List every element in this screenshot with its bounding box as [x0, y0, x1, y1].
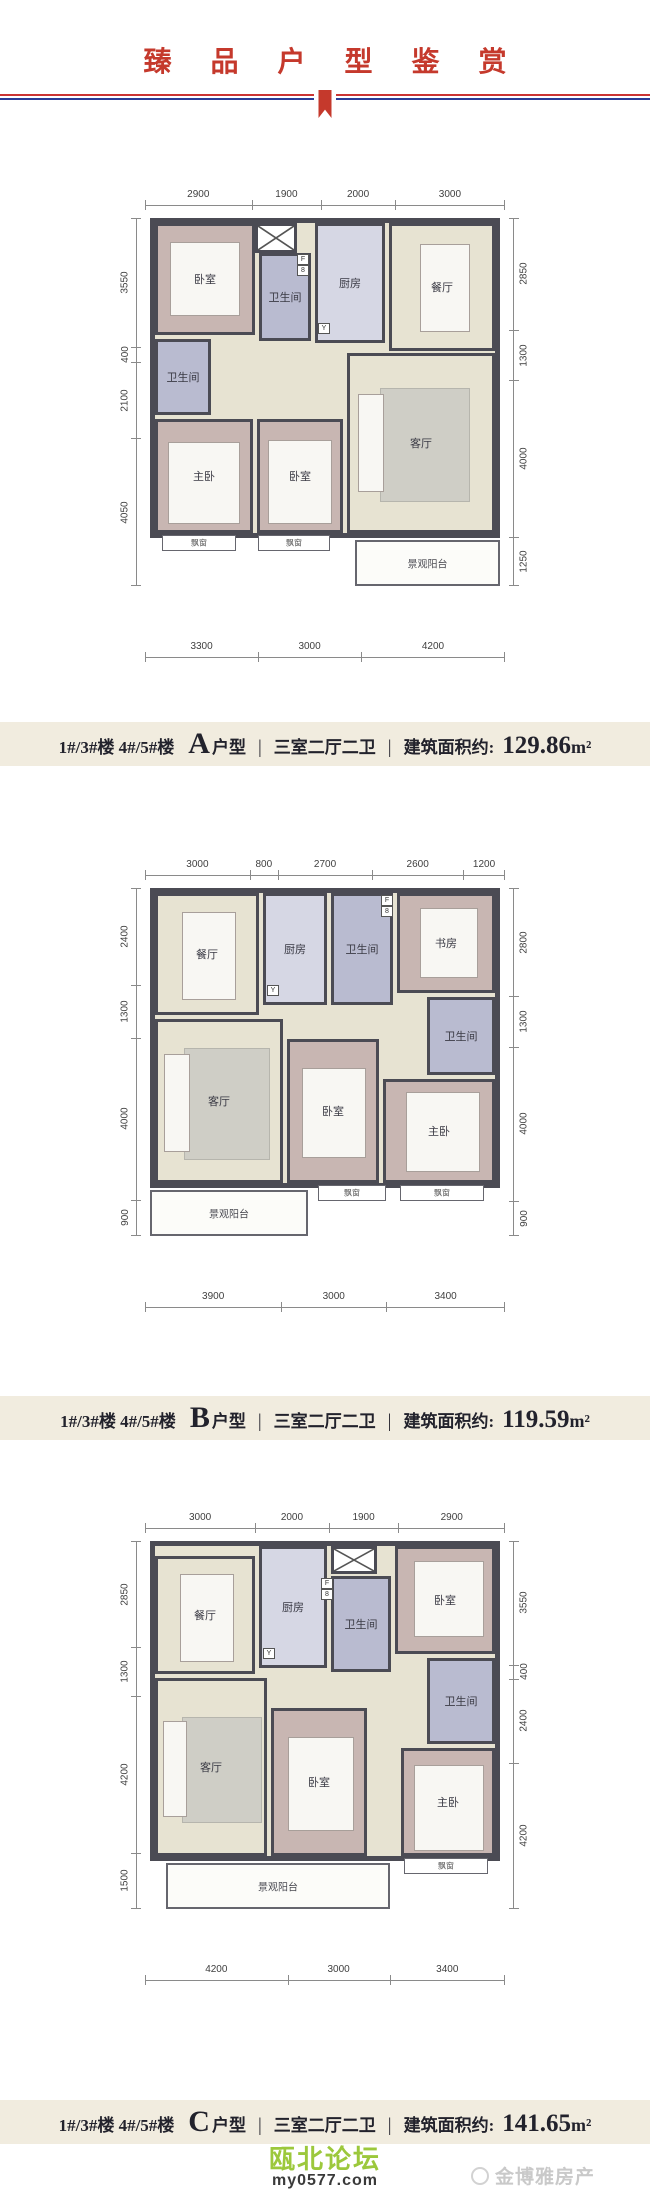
dim-segment: 3000: [258, 640, 361, 658]
dim-segment: 4200: [361, 640, 505, 658]
floorplan-a: 卧室 卫生间 F 8 厨房 Y 餐厅: [150, 218, 500, 586]
dim-segment: 3000: [145, 1511, 255, 1529]
agency-watermark: 金博雅房产: [471, 2162, 595, 2189]
dim-rail-top-b: 3000800270026001200: [145, 858, 505, 876]
caption-separator: |: [388, 726, 392, 770]
sofa-icon: [164, 1054, 190, 1152]
plan-b-caption: 1#/3#楼 4#/5#楼 B 户型 | 三室二厅二卫 | 建筑面积约: 119…: [0, 1396, 650, 1440]
dim-rail-bottom-a: 330030004200: [145, 640, 505, 658]
caption-layout: 三室二厅二卫: [274, 2104, 376, 2148]
elevator-shaft-icon: [331, 1546, 377, 1574]
dim-segment: 1300: [115, 985, 137, 1038]
caption-separator: |: [388, 2104, 392, 2148]
dim-rail-left-b: 240013004000900: [115, 888, 137, 1236]
bay-window: 飘窗: [258, 535, 330, 551]
room-master-bedroom: 主卧: [383, 1079, 495, 1183]
caption-area-unit: m²: [571, 725, 591, 769]
dim-segment: 400: [513, 1665, 535, 1679]
dim-segment: 1900: [252, 188, 322, 206]
page-title: 臻 品 户 型 鉴 赏: [0, 40, 650, 80]
floorplan-a-body: 卧室 卫生间 F 8 厨房 Y 餐厅: [150, 218, 500, 538]
caption-area-value: 129.86: [502, 724, 571, 768]
agency-logo-icon: [471, 2167, 489, 2185]
floorplan-c: 餐厅 厨房 Y 卫生间 F 8 卧室: [150, 1541, 500, 1909]
room-living: 客厅: [155, 1678, 267, 1856]
forum-watermark: 瓯北论坛 my0577.com: [269, 2146, 381, 2190]
plan-c-caption: 1#/3#楼 4#/5#楼 C 户型 | 三室二厅二卫 | 建筑面积约: 141…: [0, 2100, 650, 2144]
balcony: 景观阳台: [166, 1863, 390, 1909]
caption-separator: |: [388, 1400, 392, 1444]
bay-window: 飘窗: [162, 535, 236, 551]
dim-segment: 1500: [115, 1853, 137, 1909]
dim-segment: 4200: [145, 1963, 288, 1981]
dim-segment: 2000: [255, 1511, 328, 1529]
drain-tag: Y: [267, 985, 279, 996]
caption-type-word: 户型: [212, 726, 246, 770]
caption-type-word: 户型: [212, 2104, 246, 2148]
dim-segment: 3550: [513, 1541, 535, 1665]
dim-segment: 4200: [513, 1763, 535, 1910]
caption-building: 1#/3#楼 4#/5#楼: [59, 2104, 175, 2148]
dim-segment: 3550: [115, 218, 137, 347]
bay-window: 飘窗: [404, 1858, 488, 1874]
bay-window: 飘窗: [400, 1185, 484, 1201]
room-bedroom: 卧室: [395, 1546, 495, 1654]
dim-segment: 3000: [395, 188, 505, 206]
bay-window: 飘窗: [318, 1185, 386, 1201]
dim-rail-left-c: 2850130042001500: [115, 1541, 137, 1909]
balcony: 景观阳台: [150, 1190, 308, 1236]
caption-area-label: 建筑面积约:: [404, 2104, 495, 2148]
room-bathroom: 卫生间: [427, 997, 495, 1075]
dim-segment: 2900: [145, 188, 252, 206]
dim-segment: 3000: [288, 1963, 390, 1981]
rule-line-right: [336, 94, 650, 100]
dim-rail-bottom-b: 390030003400: [145, 1290, 505, 1308]
dim-segment: 1300: [513, 330, 535, 381]
dim-segment: 900: [513, 1201, 535, 1236]
floorplan-a-section: 2900190020003000 355040021004050 卧室 卫生间: [0, 122, 650, 722]
dim-segment: 2400: [513, 1679, 535, 1763]
plan-a-caption: 1#/3#楼 4#/5#楼 A 户型 | 三室二厅二卫 | 建筑面积约: 129…: [0, 722, 650, 766]
dim-segment: 4200: [115, 1696, 137, 1853]
room-living: 客厅: [347, 353, 495, 533]
dim-segment: 1900: [329, 1511, 399, 1529]
dim-segment: 2850: [513, 218, 535, 330]
room-master-bedroom: 主卧: [401, 1748, 495, 1856]
dim-segment: 2100: [115, 362, 137, 439]
dim-segment: 2700: [278, 858, 372, 876]
caption-separator: |: [258, 1400, 262, 1444]
header-rule: [0, 90, 650, 122]
dim-segment: 4000: [115, 1038, 137, 1200]
flue-tag: F: [321, 1578, 333, 1589]
page-footer: 瓯北论坛 my0577.com 金博雅房产: [0, 2144, 650, 2199]
water-heater-tag: 8: [381, 906, 393, 917]
water-heater-tag: 8: [297, 265, 309, 276]
dim-rail-right-b: 280013004000900: [513, 888, 535, 1236]
dim-segment: 3400: [390, 1963, 505, 1981]
dim-segment: 3900: [145, 1290, 281, 1308]
dim-segment: 3000: [281, 1290, 386, 1308]
dim-rail-left-a: 355040021004050: [115, 218, 137, 586]
caption-separator: |: [258, 2104, 262, 2148]
sofa-icon: [358, 394, 384, 492]
dim-rail-top-c: 3000200019002900: [145, 1511, 505, 1529]
flue-tag: F: [297, 254, 309, 265]
room-bedroom: 卧室: [257, 419, 343, 533]
rule-line-left: [0, 94, 314, 100]
dim-segment: 2600: [372, 858, 463, 876]
dim-segment: 2900: [398, 1511, 505, 1529]
agency-name: 金博雅房产: [495, 2162, 595, 2189]
dim-rail-right-c: 355040024004200: [513, 1541, 535, 1909]
floorplan-b: 餐厅 厨房 Y 卫生间 F 8 书房 卫生: [150, 888, 500, 1236]
caption-area-unit: m²: [571, 2103, 591, 2147]
dim-segment: 3300: [145, 640, 258, 658]
sofa-icon: [163, 1721, 187, 1817]
room-bedroom: 卧室: [287, 1039, 379, 1183]
room-study: 书房: [397, 893, 495, 993]
room-dining: 餐厅: [155, 1556, 255, 1674]
room-dining: 餐厅: [389, 223, 495, 351]
room-dining: 餐厅: [155, 893, 259, 1015]
caption-type-letter: B: [190, 1396, 210, 1440]
dim-rail-bottom-c: 420030003400: [145, 1963, 505, 1981]
room-living: 客厅: [155, 1019, 283, 1183]
room-bathroom: 卫生间: [427, 1658, 495, 1744]
caption-separator: |: [258, 726, 262, 770]
dim-rail-right-a: 2850130040001250: [513, 218, 535, 586]
caption-building: 1#/3#楼 4#/5#楼: [60, 1400, 176, 1444]
drain-tag: Y: [318, 323, 330, 334]
caption-area-label: 建筑面积约:: [403, 1400, 494, 1444]
floorplan-c-section: 3000200019002900 2850130042001500 餐厅 厨房 …: [0, 1440, 650, 2100]
caption-layout: 三室二厅二卫: [274, 1400, 376, 1444]
dim-segment: 4000: [513, 1047, 535, 1202]
dim-segment: 800: [250, 858, 278, 876]
caption-type-word: 户型: [212, 1400, 246, 1444]
dim-segment: 2800: [513, 888, 535, 996]
dim-segment: 1300: [115, 1647, 137, 1696]
floorplan-b-section: 3000800270026001200 240013004000900 餐厅 厨…: [0, 766, 650, 1396]
rug-icon: [182, 1717, 262, 1823]
caption-area-label: 建筑面积约:: [404, 726, 495, 770]
page-header: 臻 品 户 型 鉴 赏: [0, 0, 650, 122]
caption-area-value: 141.65: [502, 2102, 571, 2146]
floorplan-b-body: 餐厅 厨房 Y 卫生间 F 8 书房 卫生: [150, 888, 500, 1188]
dim-segment: 2850: [115, 1541, 137, 1647]
dim-segment: 3400: [386, 1290, 505, 1308]
dim-segment: 4000: [513, 380, 535, 537]
floorplan-c-body: 餐厅 厨房 Y 卫生间 F 8 卧室: [150, 1541, 500, 1861]
balcony: 景观阳台: [355, 540, 500, 586]
dim-segment: 4050: [115, 438, 137, 586]
caption-area-unit: m²: [570, 1399, 590, 1443]
drain-tag: Y: [263, 1648, 275, 1659]
dim-segment: 1250: [513, 537, 535, 586]
room-master-bedroom: 主卧: [155, 419, 253, 533]
dim-segment: 400: [115, 347, 137, 362]
room-bathroom: 卫生间: [331, 1576, 391, 1672]
forum-url: my0577.com: [269, 2172, 381, 2190]
room-bathroom: 卫生间: [155, 339, 211, 415]
flue-tag: F: [381, 895, 393, 906]
dim-segment: 1200: [463, 858, 505, 876]
forum-name: 瓯北论坛: [269, 2146, 381, 2172]
dim-rail-top-a: 2900190020003000: [145, 188, 505, 206]
dim-segment: 900: [115, 1200, 137, 1236]
dim-segment: 2000: [321, 188, 394, 206]
dim-segment: 1300: [513, 996, 535, 1046]
caption-type-letter: C: [188, 2100, 210, 2144]
caption-building: 1#/3#楼 4#/5#楼: [59, 726, 175, 770]
water-heater-tag: 8: [321, 1589, 333, 1600]
room-bedroom: 卧室: [155, 223, 255, 335]
elevator-shaft-icon: [255, 223, 297, 253]
caption-type-letter: A: [188, 722, 210, 766]
dim-segment: 2400: [115, 888, 137, 985]
caption-layout: 三室二厅二卫: [274, 726, 376, 770]
dim-segment: 3000: [145, 858, 250, 876]
room-bedroom: 卧室: [271, 1708, 367, 1856]
caption-area-value: 119.59: [502, 1398, 569, 1442]
ribbon-icon: [319, 90, 332, 118]
